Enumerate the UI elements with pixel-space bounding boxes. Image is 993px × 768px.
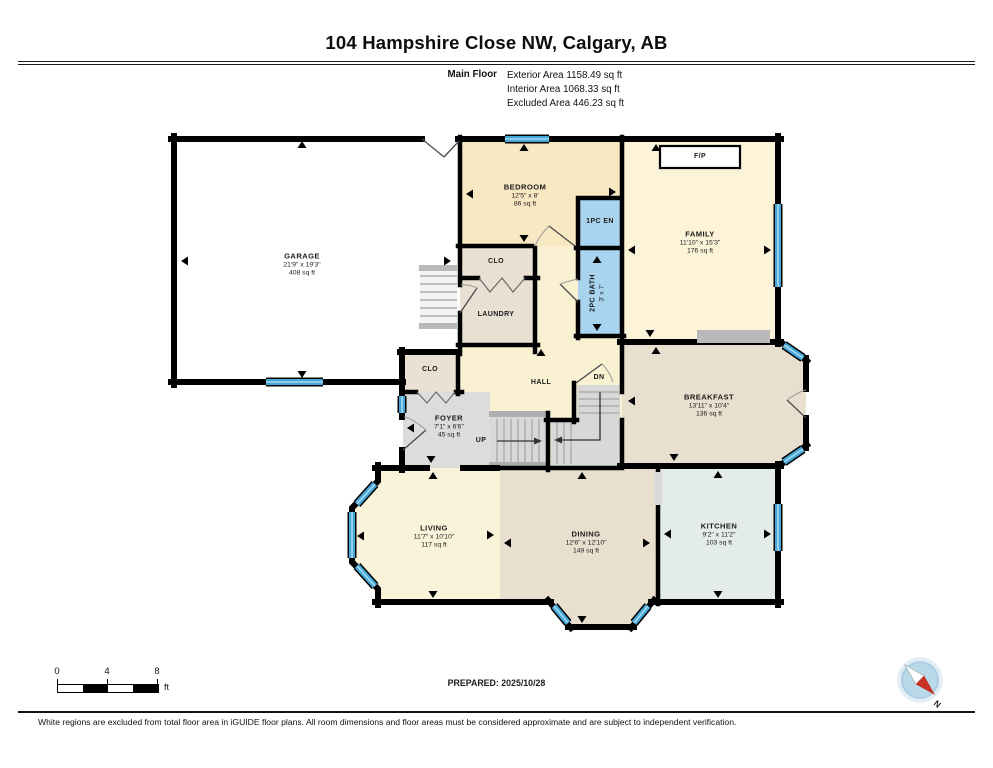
compass-icon: N (892, 652, 950, 714)
room-label-garage: GARAGE 21'9" x 19'3" 408 sq ft (283, 252, 320, 278)
stairs-garage (419, 265, 457, 329)
kitchen-opening (654, 472, 662, 505)
scale-tick-4: 4 (101, 666, 113, 677)
room-label-closet-lower: CLO (422, 366, 438, 375)
footer-divider (18, 711, 975, 713)
room-label-stairs-up: UP (476, 437, 487, 446)
scale-tick-0: 0 (51, 666, 63, 677)
prepared-date: PREPARED: 2025/10/28 (0, 678, 993, 688)
room-label-breakfast: BREAKFAST 13'11" x 10'4" 136 sq ft (684, 393, 734, 419)
room-label-kitchen: KITCHEN 9'2" x 11'2" 103 sq ft (701, 522, 738, 548)
room-label-stairs-dn: DN (594, 374, 605, 383)
room-label-bath: 2PC BATH 3' x 7' (590, 274, 607, 312)
floor-plan (0, 0, 993, 768)
room-label-hall: HALL (531, 379, 551, 388)
room-label-bedroom: BEDROOM 12'5" x 8' 86 sq ft (504, 183, 546, 209)
room-label-laundry: LAUNDRY (478, 311, 515, 320)
hearth (697, 330, 770, 343)
room-label-closet-upper: CLO (488, 258, 504, 267)
room-label-fireplace: F/P (694, 153, 706, 162)
room-label-family: FAMILY 11'10" x 15'3" 176 sq ft (680, 230, 721, 256)
stairs-up (489, 411, 547, 468)
compass-n-label: N (932, 698, 943, 710)
disclaimer-text: White regions are excluded from total fl… (38, 717, 963, 727)
room-label-living: LIVING 11'7" x 10'10" 117 sq ft (414, 524, 455, 550)
scale-tick-8: 8 (151, 666, 163, 677)
room-label-ensuite: 1PC EN (586, 218, 614, 227)
floorplan-page: 104 Hampshire Close NW, Calgary, AB Main… (0, 0, 993, 768)
room-label-foyer: FOYER 7'1" x 6'6" 45 sq ft (434, 414, 464, 440)
room-label-dining: DINING 12'6" x 12'10" 149 sq ft (565, 530, 606, 556)
